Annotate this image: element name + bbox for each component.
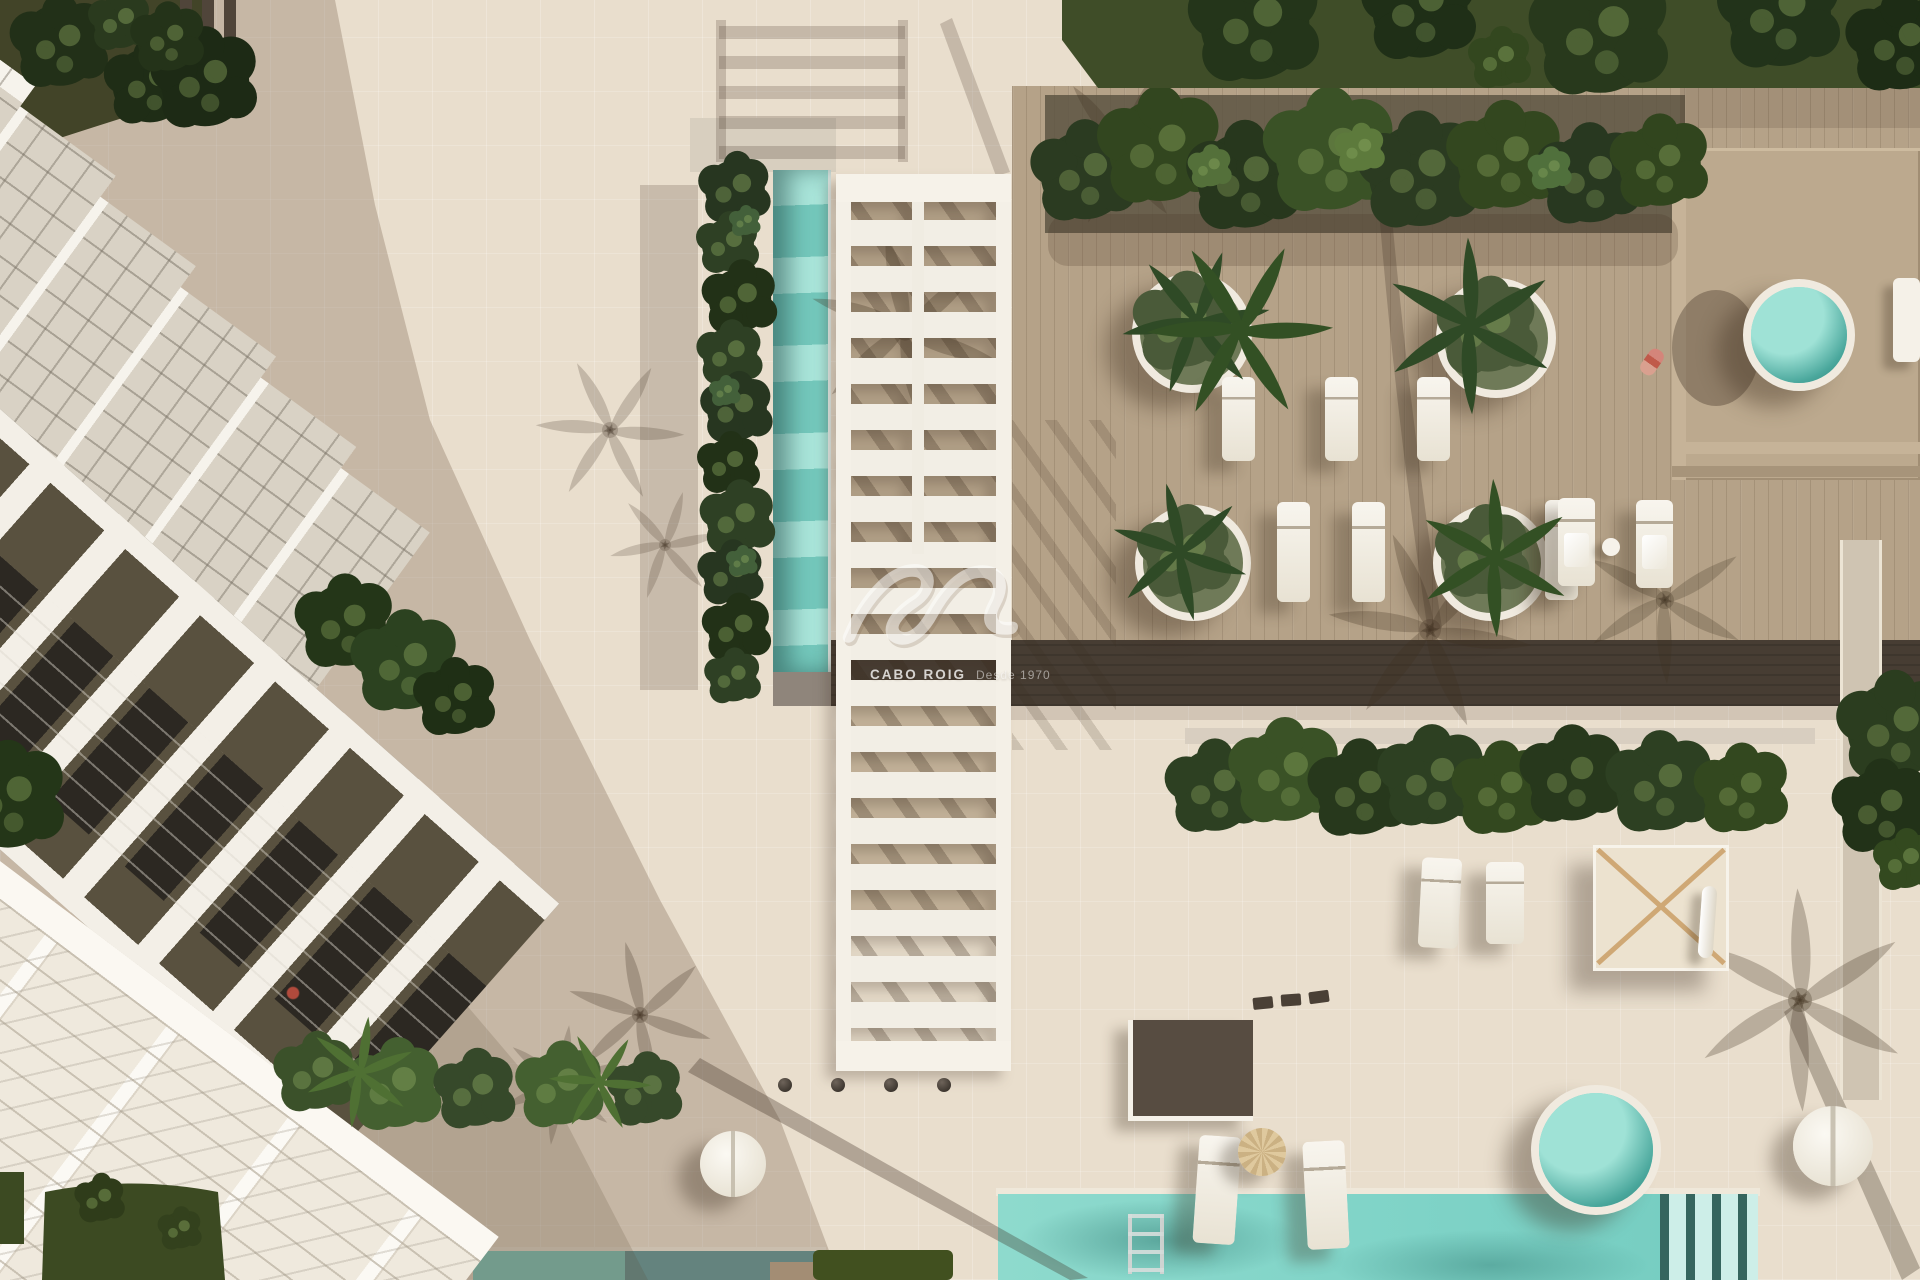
jacuzzi-water xyxy=(1751,287,1847,383)
pool-ladder xyxy=(1128,1214,1164,1274)
watermark: CABO ROIGDesde 1970 xyxy=(830,545,1090,695)
platform-step-left xyxy=(1672,148,1686,480)
lap-pool-plinth xyxy=(690,118,836,172)
round-planter-2 xyxy=(1436,278,1556,398)
gate-slats xyxy=(180,0,242,58)
hedge-shadow xyxy=(640,185,698,690)
bollard xyxy=(937,1078,951,1092)
terrace-lounger xyxy=(1418,857,1463,949)
wood-strip xyxy=(770,1262,820,1280)
mat xyxy=(1281,993,1302,1006)
tagline: Desde 1970 xyxy=(976,668,1051,682)
watermark-text: CABO ROIGDesde 1970 xyxy=(870,667,1051,682)
terrace-lounger xyxy=(1486,862,1524,944)
sun-lounger xyxy=(1277,502,1310,602)
pool-steps xyxy=(1660,1194,1758,1280)
round-planter-3 xyxy=(1135,505,1251,621)
sun-lounger-with-towel xyxy=(1636,500,1673,588)
poolside-lounger xyxy=(1192,1135,1241,1246)
pergola-top-cap xyxy=(836,174,1011,202)
round-planter-4 xyxy=(1433,505,1549,621)
straw-parasol xyxy=(1238,1128,1286,1176)
jacuzzi xyxy=(1743,279,1855,391)
bollard xyxy=(778,1078,792,1092)
siv-logo-watermark-icon xyxy=(840,545,1060,655)
towel xyxy=(1564,533,1590,566)
poolside-lounger xyxy=(1302,1140,1350,1250)
round-planter-1 xyxy=(1132,273,1252,393)
round-daybed xyxy=(1793,1106,1873,1186)
spa-water xyxy=(1539,1093,1653,1207)
balcony-flowers xyxy=(286,986,300,1000)
sun-lounger-with-towel xyxy=(1558,498,1595,586)
platform-step-bottom-2 xyxy=(1672,466,1920,477)
sun-lounger xyxy=(1352,502,1385,602)
round-spa xyxy=(1531,1085,1661,1215)
sun-lounger xyxy=(1222,377,1255,461)
edge-furniture xyxy=(1893,278,1920,362)
aerial-render-canvas: CABO ROIGDesde 1970 xyxy=(0,0,1920,1280)
right-path xyxy=(1840,540,1882,1100)
lap-pool xyxy=(773,170,831,672)
pergola-center-rail xyxy=(912,174,924,554)
sun-lounger xyxy=(1417,377,1450,461)
grass-band-topright xyxy=(1062,0,1920,94)
platform-step-bottom xyxy=(1672,442,1920,454)
hedge-planter-strip xyxy=(1045,95,1685,233)
sun-lounger xyxy=(1325,377,1358,461)
bollard xyxy=(831,1078,845,1092)
brand-name: CABO ROIG xyxy=(870,667,966,682)
round-daybed xyxy=(700,1131,766,1197)
mat xyxy=(1252,996,1273,1010)
shade-structure xyxy=(1128,1020,1253,1121)
lap-pool-endcap xyxy=(773,672,831,706)
pool-hedge xyxy=(696,151,777,703)
side-table xyxy=(1602,538,1620,556)
pergola-bottom-cap xyxy=(836,1041,1011,1071)
mat xyxy=(1308,990,1329,1005)
bollard xyxy=(884,1078,898,1092)
towel xyxy=(1642,535,1668,568)
terrace-hedge-row xyxy=(1165,717,1815,836)
